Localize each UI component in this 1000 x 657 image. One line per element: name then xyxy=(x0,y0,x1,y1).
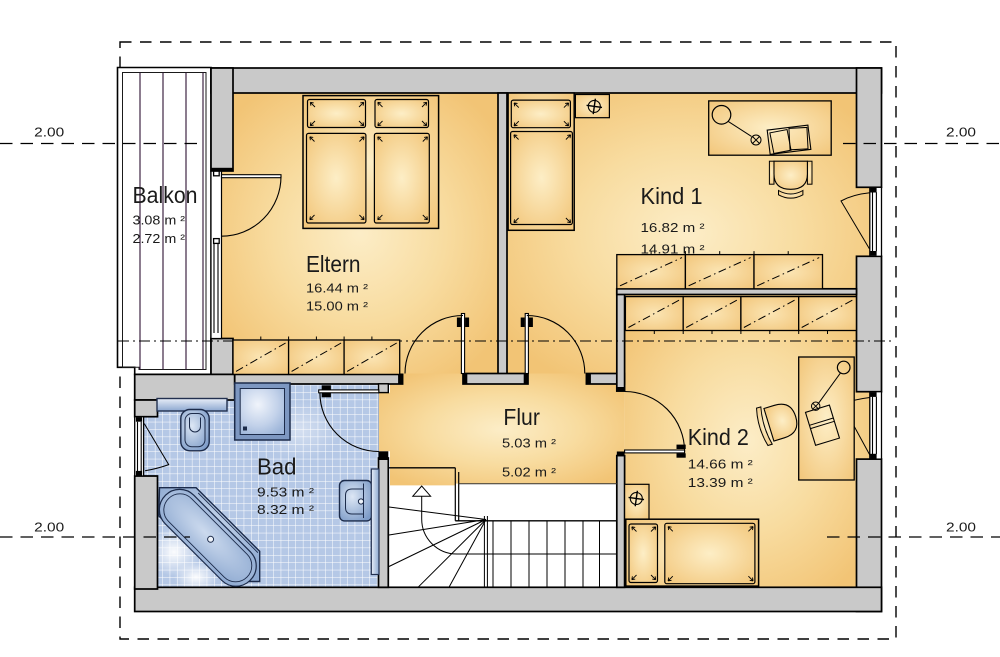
svg-text:Kind 2: Kind 2 xyxy=(688,424,749,450)
svg-text:13.39 m ²: 13.39 m ² xyxy=(688,475,754,490)
svg-text:8.32 m ²: 8.32 m ² xyxy=(257,502,315,517)
svg-text:2.00: 2.00 xyxy=(946,520,976,535)
svg-text:16.44 m ²: 16.44 m ² xyxy=(306,281,369,296)
svg-text:Balkon: Balkon xyxy=(133,182,198,208)
svg-text:2.00: 2.00 xyxy=(946,125,976,140)
svg-text:2.72 m ²: 2.72 m ² xyxy=(133,231,186,246)
svg-text:16.82 m ²: 16.82 m ² xyxy=(641,220,706,235)
svg-text:5.03 m ²: 5.03 m ² xyxy=(502,436,557,451)
svg-text:Flur: Flur xyxy=(503,404,540,430)
svg-text:3.08 m ²: 3.08 m ² xyxy=(133,213,186,228)
svg-text:9.53 m ²: 9.53 m ² xyxy=(257,485,315,500)
svg-text:5.02 m ²: 5.02 m ² xyxy=(502,465,557,480)
svg-text:2.00: 2.00 xyxy=(34,520,64,535)
svg-text:Eltern: Eltern xyxy=(306,251,361,277)
svg-text:Kind 1: Kind 1 xyxy=(641,183,703,209)
svg-text:15.00 m ²: 15.00 m ² xyxy=(306,299,369,314)
svg-text:2.00: 2.00 xyxy=(34,125,64,140)
svg-text:14.91 m ²: 14.91 m ² xyxy=(641,242,706,257)
svg-text:14.66 m ²: 14.66 m ² xyxy=(688,457,754,472)
svg-text:Bad: Bad xyxy=(257,454,297,480)
